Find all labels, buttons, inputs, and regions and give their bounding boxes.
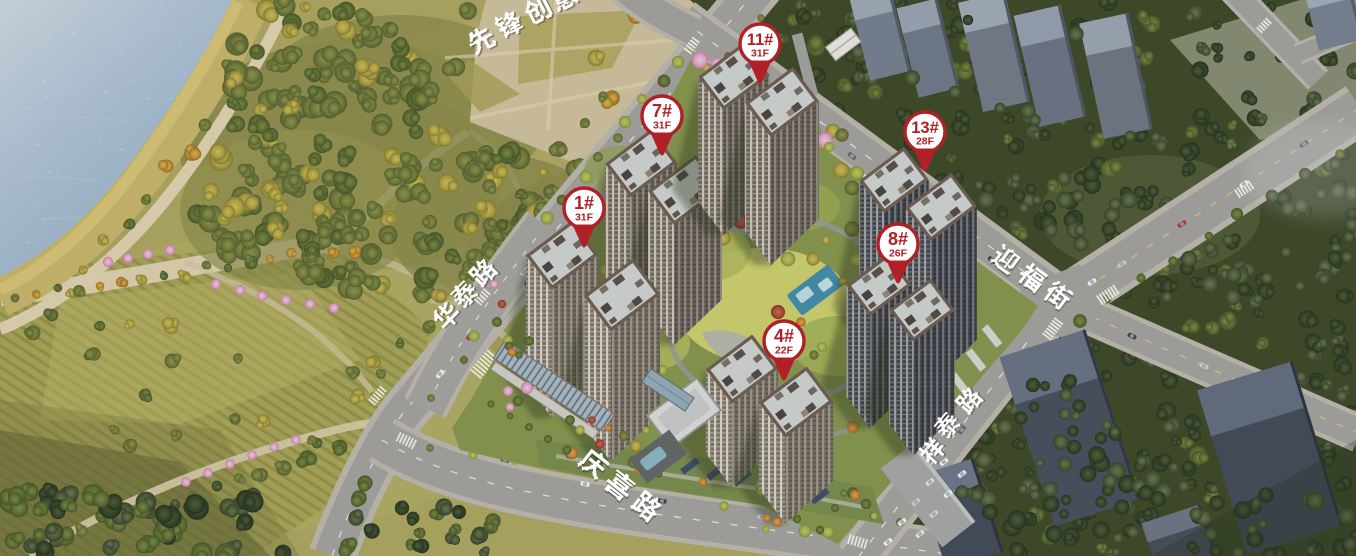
svg-text:7#: 7# bbox=[652, 101, 672, 121]
svg-text:11#: 11# bbox=[747, 31, 774, 49]
svg-text:31F: 31F bbox=[653, 120, 672, 132]
svg-text:4#: 4# bbox=[774, 326, 794, 346]
svg-text:13#: 13# bbox=[911, 119, 939, 137]
svg-text:22F: 22F bbox=[775, 345, 794, 357]
svg-text:26F: 26F bbox=[889, 248, 908, 260]
svg-text:8#: 8# bbox=[888, 229, 908, 249]
svg-text:1#: 1# bbox=[574, 193, 594, 213]
svg-text:31F: 31F bbox=[575, 212, 594, 224]
svg-text:28F: 28F bbox=[916, 136, 935, 148]
svg-text:31F: 31F bbox=[751, 48, 770, 60]
